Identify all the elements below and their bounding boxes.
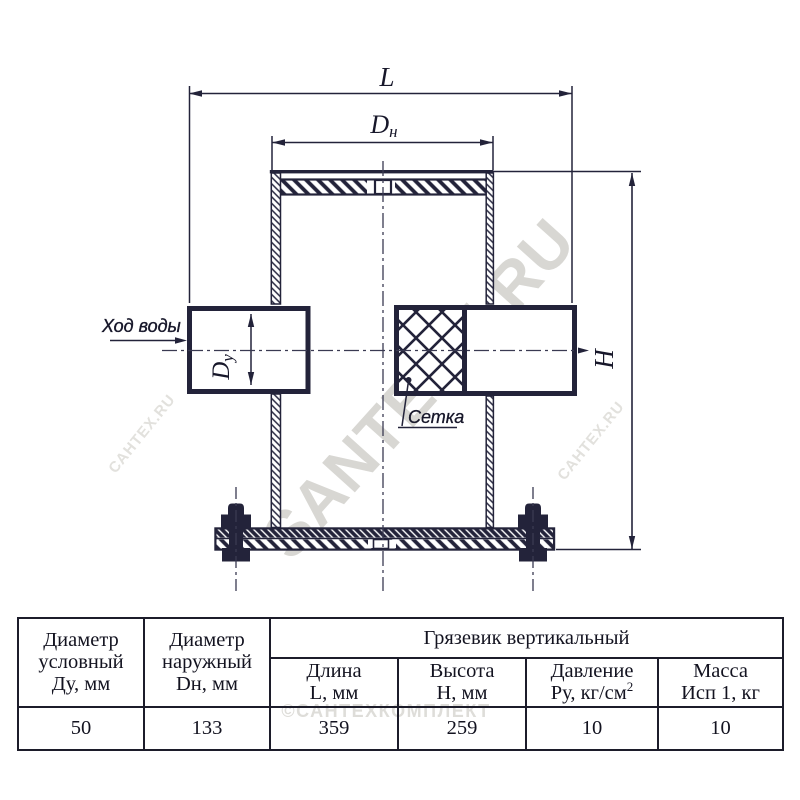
svg-text:H: H bbox=[589, 348, 619, 370]
svg-text:САНТЕХ.RU: САНТЕХ.RU bbox=[105, 391, 179, 476]
svg-text:Сетка: Сетка bbox=[408, 407, 464, 427]
svg-text:L: L bbox=[378, 62, 394, 92]
svg-text:Ход воды: Ход воды bbox=[101, 316, 181, 336]
svg-text:Dн: Dн bbox=[369, 110, 397, 141]
svg-text:САНТЕХ.RU: САНТЕХ.RU bbox=[554, 398, 628, 483]
